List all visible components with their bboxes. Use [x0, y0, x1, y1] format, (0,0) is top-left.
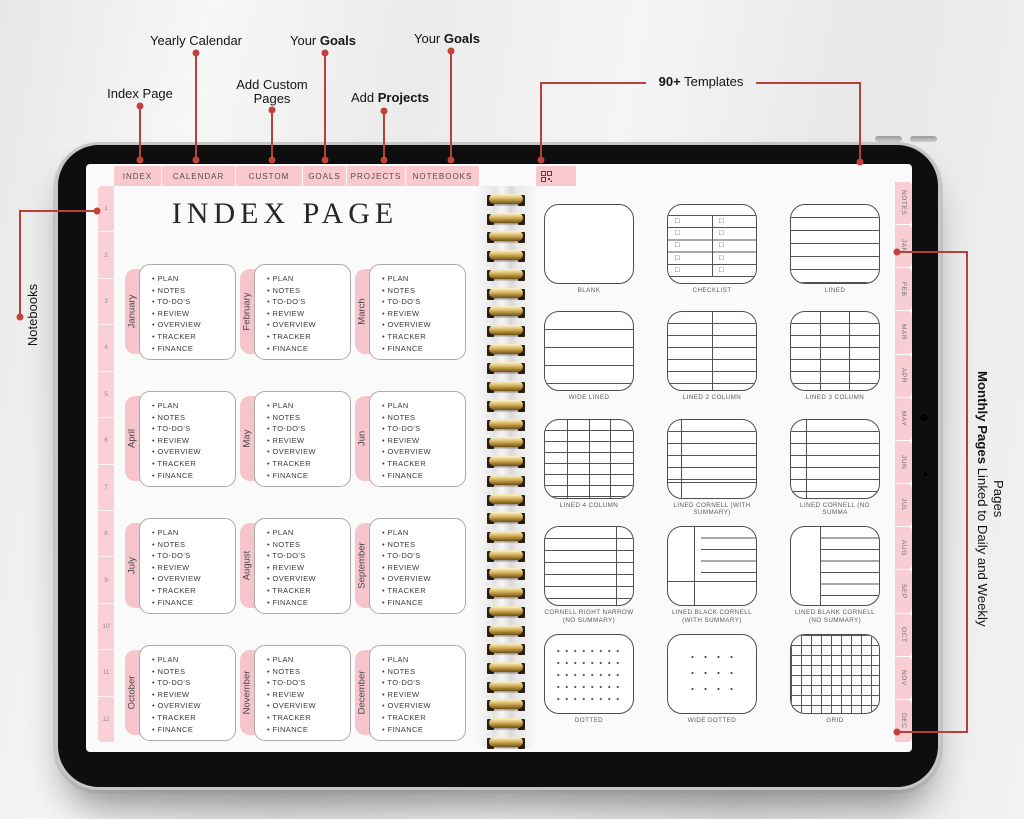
spiral-coil: [489, 231, 523, 241]
month-links: PLANNOTESTO-DO'SREVIEWOVERVIEWTRACKERFIN…: [267, 400, 347, 481]
side-tab-mar[interactable]: MAR: [895, 311, 912, 353]
annotation-dot: [448, 157, 455, 164]
month-links: PLANNOTESTO-DO'SREVIEWOVERVIEWTRACKERFIN…: [382, 273, 462, 354]
template-cell: LINED: [790, 204, 880, 311]
top-tab-bar: INDEXCALENDARCUSTOMGOALSPROJECTSNOTEBOOK…: [114, 166, 479, 186]
template-thumb-blank-cornell[interactable]: [790, 526, 880, 606]
month-link[interactable]: REVIEW: [382, 308, 462, 320]
spiral-ring: [485, 194, 527, 207]
month-link[interactable]: TRACKER: [382, 585, 462, 597]
volume-button: [910, 136, 937, 142]
month-link[interactable]: NOTES: [152, 412, 232, 424]
month-link[interactable]: TO-DO'S: [152, 296, 232, 308]
spiral-coil: [489, 625, 523, 635]
side-tab-1[interactable]: 1: [98, 186, 114, 231]
spiral-ring: [485, 381, 527, 394]
month-links: PLANNOTESTO-DO'SREVIEWOVERVIEWTRACKERFIN…: [382, 527, 462, 608]
spiral-coil: [489, 381, 523, 391]
month-link[interactable]: FINANCE: [382, 470, 462, 482]
month-link[interactable]: FINANCE: [152, 470, 232, 482]
month-block-august: AugustPLANNOTESTO-DO'SREVIEWOVERVIEWTRAC…: [240, 518, 352, 614]
month-link[interactable]: PLAN: [152, 273, 232, 285]
template-label: WIDE DOTTED: [688, 717, 736, 725]
side-tab-feb[interactable]: FEB: [895, 268, 912, 310]
month-link[interactable]: TO-DO'S: [382, 550, 462, 562]
spiral-ring: [485, 643, 527, 656]
month-link[interactable]: TRACKER: [152, 458, 232, 470]
black-cornell-pattern: [668, 527, 756, 605]
template-thumb-blank[interactable]: [544, 204, 634, 284]
side-tab-7[interactable]: 7: [98, 464, 114, 510]
spiral-ring: [485, 662, 527, 675]
month-link[interactable]: FINANCE: [382, 597, 462, 609]
month-link[interactable]: NOTES: [382, 412, 462, 424]
annotation-line: [195, 52, 197, 160]
template-label: LINED 2 COLUMN: [683, 394, 741, 402]
month-link[interactable]: NOTES: [267, 412, 347, 424]
spiral-ring: [485, 325, 527, 338]
month-link[interactable]: NOTES: [152, 285, 232, 297]
month-card: PLANNOTESTO-DO'SREVIEWOVERVIEWTRACKERFIN…: [369, 645, 466, 741]
annotation-dot: [193, 157, 200, 164]
month-link[interactable]: TRACKER: [152, 585, 232, 597]
annotation-dot: [193, 50, 200, 57]
side-tab-dec[interactable]: DEC: [895, 700, 912, 742]
month-block-november: NovemberPLANNOTESTO-DO'SREVIEWOVERVIEWTR…: [240, 645, 352, 741]
spiral-ring: [485, 587, 527, 600]
template-thumb-cornell-right[interactable]: [544, 526, 634, 606]
templates-grid: BLANKCHECKLISTLINEDWIDE LINEDLINED 2 COL…: [544, 204, 880, 741]
annotation-dot: [269, 107, 276, 114]
month-link[interactable]: TO-DO'S: [382, 677, 462, 689]
annotation-line: [859, 82, 861, 162]
annotation-dot: [94, 208, 101, 215]
spiral-ring: [485, 288, 527, 301]
side-tab-10[interactable]: 10: [98, 603, 114, 649]
template-thumb-col3[interactable]: [790, 311, 880, 391]
tab-index[interactable]: INDEX: [114, 166, 161, 186]
month-link[interactable]: NOTES: [267, 539, 347, 551]
template-cell: LINED BLACK CORNELL (WITH SUMMARY): [667, 526, 757, 633]
annotation-yearly-calendar: Yearly Calendar: [150, 34, 242, 48]
annotation-dot: [381, 108, 388, 115]
month-card: PLANNOTESTO-DO'SREVIEWOVERVIEWTRACKERFIN…: [139, 391, 236, 487]
month-link[interactable]: NOTES: [152, 666, 232, 678]
month-link[interactable]: PLAN: [382, 527, 462, 539]
annotation-line: [540, 82, 542, 160]
month-block-september: SeptemberPLANNOTESTO-DO'SREVIEWOVERVIEWT…: [355, 518, 467, 614]
month-card: PLANNOTESTO-DO'SREVIEWOVERVIEWTRACKERFIN…: [254, 645, 351, 741]
month-link[interactable]: REVIEW: [152, 435, 232, 447]
template-label: LINED BLANK CORNELL (NO SUMMARY): [790, 609, 880, 624]
template-label: BLANK: [578, 287, 601, 295]
annotation-line: [450, 50, 452, 160]
spiral-ring: [485, 231, 527, 244]
month-name: January: [127, 276, 138, 348]
annotation-monthly-pages: Monthly Pages Linked to Daily and Weekly…: [974, 368, 1006, 630]
grid-pattern: [791, 635, 879, 713]
month-link[interactable]: REVIEW: [267, 435, 347, 447]
month-block-july: JulyPLANNOTESTO-DO'SREVIEWOVERVIEWTRACKE…: [125, 518, 237, 614]
month-link[interactable]: TO-DO'S: [152, 677, 232, 689]
month-link[interactable]: FINANCE: [267, 724, 347, 736]
side-tab-4[interactable]: 4: [98, 324, 114, 370]
tab-custom[interactable]: CUSTOM: [235, 166, 302, 186]
annotation-dot: [137, 103, 144, 110]
month-link[interactable]: REVIEW: [152, 562, 232, 574]
template-thumb-grid[interactable]: [790, 634, 880, 714]
month-links: PLANNOTESTO-DO'SREVIEWOVERVIEWTRACKERFIN…: [152, 654, 232, 735]
month-link[interactable]: NOTES: [382, 666, 462, 678]
month-card: PLANNOTESTO-DO'SREVIEWOVERVIEWTRACKERFIN…: [139, 264, 236, 360]
month-link[interactable]: REVIEW: [382, 435, 462, 447]
spiral-ring: [485, 475, 527, 488]
template-cell: LINED CORNELL (WITH SUMMARY): [667, 419, 757, 526]
side-tab-notes[interactable]: NOTES: [895, 182, 912, 224]
template-cell: LINED 3 COLUMN: [790, 311, 880, 418]
annotation-dot: [322, 157, 329, 164]
month-link[interactable]: OVERVIEW: [267, 319, 347, 331]
month-links: PLANNOTESTO-DO'SREVIEWOVERVIEWTRACKERFIN…: [382, 654, 462, 735]
col4-pattern: [545, 420, 633, 498]
spiral-coil: [489, 643, 523, 653]
lined-pattern: [791, 205, 879, 283]
template-thumb-dotted[interactable]: [544, 634, 634, 714]
month-link[interactable]: TO-DO'S: [152, 423, 232, 435]
month-link[interactable]: TO-DO'S: [382, 296, 462, 308]
month-link[interactable]: OVERVIEW: [382, 573, 462, 585]
month-links: PLANNOTESTO-DO'SREVIEWOVERVIEWTRACKERFIN…: [267, 654, 347, 735]
annotation-line: [542, 82, 646, 84]
month-link[interactable]: TRACKER: [267, 712, 347, 724]
month-link[interactable]: OVERVIEW: [152, 573, 232, 585]
month-block-april: AprilPLANNOTESTO-DO'SREVIEWOVERVIEWTRACK…: [125, 391, 237, 487]
month-link[interactable]: TO-DO'S: [152, 550, 232, 562]
spiral-ring: [485, 362, 527, 375]
template-cell: LINED 2 COLUMN: [667, 311, 757, 418]
spiral-coil: [489, 250, 523, 260]
side-tab-apr[interactable]: APR: [895, 355, 912, 397]
camera-lens-icon: [919, 413, 929, 423]
month-link[interactable]: TRACKER: [382, 458, 462, 470]
month-link[interactable]: OVERVIEW: [152, 446, 232, 458]
month-name: October: [127, 657, 138, 729]
tablet-frame: INDEXCALENDARCUSTOMGOALSPROJECTSNOTEBOOK…: [55, 142, 941, 790]
month-block-jun: JunPLANNOTESTO-DO'SREVIEWOVERVIEWTRACKER…: [355, 391, 467, 487]
month-link[interactable]: NOTES: [267, 666, 347, 678]
month-link[interactable]: FINANCE: [267, 597, 347, 609]
month-link[interactable]: REVIEW: [267, 308, 347, 320]
spiral-coil: [489, 662, 523, 672]
template-label: LINED 3 COLUMN: [806, 394, 864, 402]
spiral-ring: [485, 681, 527, 694]
template-cell: LINED BLANK CORNELL (NO SUMMARY): [790, 526, 880, 633]
template-cell: LINED 4 COLUMN: [544, 419, 634, 526]
spiral-ring: [485, 269, 527, 282]
annotation-line: [383, 110, 385, 160]
spiral-coil: [489, 288, 523, 298]
template-thumb-col4[interactable]: [544, 419, 634, 499]
annotation-line: [271, 109, 273, 160]
side-tab-11[interactable]: 11: [98, 649, 114, 695]
month-link[interactable]: REVIEW: [267, 689, 347, 701]
template-label: DOTTED: [575, 717, 603, 725]
month-link[interactable]: NOTES: [152, 539, 232, 551]
side-tab-nov[interactable]: NOV: [895, 657, 912, 699]
month-card: PLANNOTESTO-DO'SREVIEWOVERVIEWTRACKERFIN…: [369, 264, 466, 360]
month-link[interactable]: OVERVIEW: [152, 319, 232, 331]
spiral-coil: [489, 437, 523, 447]
month-card: PLANNOTESTO-DO'SREVIEWOVERVIEWTRACKERFIN…: [254, 518, 351, 614]
side-tab-8[interactable]: 8: [98, 510, 114, 556]
template-label: WIDE LINED: [569, 394, 610, 402]
spiral-coil: [489, 550, 523, 560]
template-grid-icon: [541, 171, 552, 182]
month-name: September: [357, 530, 368, 602]
blank-cornell-pattern: [791, 527, 879, 605]
spiral-coil: [489, 699, 523, 709]
side-tab-jul[interactable]: JUL: [895, 484, 912, 526]
months-grid: JanuaryPLANNOTESTO-DO'SREVIEWOVERVIEWTRA…: [125, 264, 471, 741]
month-link[interactable]: PLAN: [152, 400, 232, 412]
side-tab-aug[interactable]: AUG: [895, 527, 912, 569]
month-link[interactable]: OVERVIEW: [382, 700, 462, 712]
annotation-dot: [538, 157, 545, 164]
template-thumb-wide-lined[interactable]: [544, 311, 634, 391]
col3-pattern: [791, 312, 879, 390]
spiral-ring: [485, 550, 527, 563]
month-name: May: [242, 403, 253, 475]
spiral-ring: [485, 737, 527, 750]
month-link[interactable]: REVIEW: [382, 689, 462, 701]
side-tab-sep[interactable]: SEP: [895, 570, 912, 612]
month-link[interactable]: OVERVIEW: [152, 700, 232, 712]
month-link[interactable]: TO-DO'S: [267, 423, 347, 435]
spiral-coil: [489, 194, 523, 204]
checklist-pattern: [668, 205, 756, 283]
tab-notebooks[interactable]: NOTEBOOKS: [405, 166, 479, 186]
month-block-may: MayPLANNOTESTO-DO'SREVIEWOVERVIEWTRACKER…: [240, 391, 352, 487]
month-link[interactable]: OVERVIEW: [267, 446, 347, 458]
month-link[interactable]: PLAN: [152, 527, 232, 539]
side-tab-jun[interactable]: JUN: [895, 441, 912, 483]
cornell-nosum-pattern: [791, 420, 879, 498]
side-tab-oct[interactable]: OCT: [895, 614, 912, 656]
spiral-coil: [489, 400, 523, 410]
spiral-coil: [489, 531, 523, 541]
template-label: LINED CORNELL (WITH SUMMARY): [667, 502, 757, 517]
template-label: LINED: [825, 287, 846, 295]
dotted-pattern: [545, 635, 633, 713]
spiral-coil: [489, 362, 523, 372]
spiral-coil: [489, 456, 523, 466]
month-link[interactable]: TO-DO'S: [267, 677, 347, 689]
side-tab-6[interactable]: 6: [98, 417, 114, 463]
side-tab-may[interactable]: MAY: [895, 398, 912, 440]
side-tab-5[interactable]: 5: [98, 371, 114, 417]
template-cell: GRID: [790, 634, 880, 741]
month-link[interactable]: FINANCE: [382, 343, 462, 355]
spiral-ring: [485, 568, 527, 581]
annotation-dot: [381, 157, 388, 164]
month-name: July: [127, 530, 138, 602]
page-title: INDEX PAGE: [145, 197, 425, 231]
right-month-tabs: NOTESJANFEBMARAPRMAYJUNJULAUGSEPOCTNOVDE…: [895, 182, 912, 742]
month-link[interactable]: TRACKER: [382, 331, 462, 343]
left-number-tabs: 123456789101112: [98, 186, 114, 742]
month-link[interactable]: OVERVIEW: [382, 319, 462, 331]
spiral-coil: [489, 419, 523, 429]
month-link[interactable]: TRACKER: [152, 331, 232, 343]
template-thumb-cornell-nosum[interactable]: [790, 419, 880, 499]
template-cell: DOTTED: [544, 634, 634, 741]
month-link[interactable]: TRACKER: [267, 585, 347, 597]
month-link[interactable]: NOTES: [382, 285, 462, 297]
month-links: PLANNOTESTO-DO'SREVIEWOVERVIEWTRACKERFIN…: [267, 273, 347, 354]
month-links: PLANNOTESTO-DO'SREVIEWOVERVIEWTRACKERFIN…: [267, 527, 347, 608]
month-link[interactable]: PLAN: [382, 654, 462, 666]
month-block-january: JanuaryPLANNOTESTO-DO'SREVIEWOVERVIEWTRA…: [125, 264, 237, 360]
month-link[interactable]: PLAN: [267, 273, 347, 285]
month-link[interactable]: TO-DO'S: [267, 296, 347, 308]
side-tab-2[interactable]: 2: [98, 231, 114, 277]
template-cell: WIDE LINED: [544, 311, 634, 418]
annotation-dot: [269, 157, 276, 164]
month-link[interactable]: REVIEW: [152, 689, 232, 701]
spiral-coil: [489, 587, 523, 597]
spiral-ring: [485, 531, 527, 544]
template-thumb-cornell-sum[interactable]: [667, 419, 757, 499]
month-link[interactable]: PLAN: [382, 273, 462, 285]
month-link[interactable]: NOTES: [267, 285, 347, 297]
month-name: November: [242, 657, 253, 729]
cornell-right-pattern: [545, 527, 633, 605]
side-tab-3[interactable]: 3: [98, 278, 114, 324]
spiral-coil: [489, 475, 523, 485]
month-link[interactable]: REVIEW: [382, 562, 462, 574]
side-tab-jan[interactable]: JAN: [895, 225, 912, 267]
month-links: PLANNOTESTO-DO'SREVIEWOVERVIEWTRACKERFIN…: [382, 400, 462, 481]
month-link[interactable]: TO-DO'S: [382, 423, 462, 435]
month-link[interactable]: OVERVIEW: [382, 446, 462, 458]
spiral-ring: [485, 625, 527, 638]
annotation-dot: [17, 314, 24, 321]
spiral-ring: [485, 419, 527, 432]
wide-lined-pattern: [545, 312, 633, 390]
annotation-line: [19, 211, 21, 317]
month-name: February: [242, 276, 253, 348]
month-link[interactable]: PLAN: [267, 654, 347, 666]
month-card: PLANNOTESTO-DO'SREVIEWOVERVIEWTRACKERFIN…: [369, 391, 466, 487]
spiral-ring: [485, 437, 527, 450]
month-link[interactable]: REVIEW: [152, 308, 232, 320]
tab-goals[interactable]: GOALS: [302, 166, 346, 186]
month-name: March: [357, 276, 368, 348]
month-link[interactable]: FINANCE: [267, 470, 347, 482]
month-link[interactable]: TRACKER: [382, 712, 462, 724]
side-tab-12[interactable]: 12: [98, 696, 114, 742]
spiral-coil: [489, 737, 523, 747]
spiral-coil: [489, 325, 523, 335]
month-block-december: DecemberPLANNOTESTO-DO'SREVIEWOVERVIEWTR…: [355, 645, 467, 741]
spiral-coil: [489, 213, 523, 223]
tab-templates-icon[interactable]: [536, 166, 576, 186]
month-link[interactable]: PLAN: [267, 400, 347, 412]
month-links: PLANNOTESTO-DO'SREVIEWOVERVIEWTRACKERFIN…: [152, 527, 232, 608]
annotation-dot: [322, 50, 329, 57]
month-name: Jun: [357, 403, 368, 475]
annotation-your-goals: Your Goals: [414, 32, 480, 46]
month-link[interactable]: FINANCE: [152, 343, 232, 355]
spiral-ring: [485, 344, 527, 357]
cornell-sum-pattern: [668, 420, 756, 498]
spiral-ring: [485, 718, 527, 731]
template-thumb-wide-dotted[interactable]: [667, 634, 757, 714]
month-link[interactable]: TRACKER: [152, 712, 232, 724]
annotation-add-custom-pages: Add Custom Pages: [226, 78, 318, 106]
month-name: April: [127, 403, 138, 475]
annotation-line: [756, 82, 861, 84]
annotation-add-projects: Add Projects: [351, 91, 429, 105]
month-card: PLANNOTESTO-DO'SREVIEWOVERVIEWTRACKERFIN…: [369, 518, 466, 614]
annotation-line: [324, 52, 326, 160]
month-link[interactable]: PLAN: [152, 654, 232, 666]
month-name: December: [357, 657, 368, 729]
template-thumb-lined[interactable]: [790, 204, 880, 284]
side-tab-9[interactable]: 9: [98, 556, 114, 602]
template-thumb-col2[interactable]: [667, 311, 757, 391]
month-card: PLANNOTESTO-DO'SREVIEWOVERVIEWTRACKERFIN…: [139, 645, 236, 741]
spiral-coil: [489, 512, 523, 522]
spiral-ring: [485, 606, 527, 619]
month-link[interactable]: FINANCE: [267, 343, 347, 355]
annotation-dot: [894, 729, 901, 736]
template-label: LINED CORNELL (NO SUMMA: [790, 502, 880, 517]
month-link[interactable]: OVERVIEW: [267, 700, 347, 712]
month-link[interactable]: PLAN: [382, 400, 462, 412]
spiral-coil: [489, 681, 523, 691]
month-link[interactable]: TRACKER: [267, 331, 347, 343]
tab-projects[interactable]: PROJECTS: [346, 166, 405, 186]
spiral-coil: [489, 718, 523, 728]
month-link[interactable]: REVIEW: [267, 562, 347, 574]
planner-screen: INDEXCALENDARCUSTOMGOALSPROJECTSNOTEBOOK…: [86, 164, 912, 752]
spiral-coil: [489, 606, 523, 616]
spiral-ring: [485, 213, 527, 226]
month-name: August: [242, 530, 253, 602]
month-link[interactable]: PLAN: [267, 527, 347, 539]
annotation-index-page: Index Page: [107, 87, 173, 101]
month-link[interactable]: OVERVIEW: [267, 573, 347, 585]
spiral-binding: [485, 194, 527, 750]
annotation-notebooks: Notebooks: [26, 275, 40, 355]
template-thumb-checklist[interactable]: [667, 204, 757, 284]
month-block-october: OctoberPLANNOTESTO-DO'SREVIEWOVERVIEWTRA…: [125, 645, 237, 741]
month-link[interactable]: TRACKER: [267, 458, 347, 470]
spiral-coil: [489, 494, 523, 504]
annotation-your-goals: Your Goals: [290, 34, 356, 48]
month-link[interactable]: FINANCE: [382, 724, 462, 736]
month-link[interactable]: FINANCE: [152, 597, 232, 609]
annotation-dot: [894, 249, 901, 256]
month-link[interactable]: TO-DO'S: [267, 550, 347, 562]
month-link[interactable]: FINANCE: [152, 724, 232, 736]
template-thumb-black-cornell[interactable]: [667, 526, 757, 606]
month-card: PLANNOTESTO-DO'SREVIEWOVERVIEWTRACKERFIN…: [254, 264, 351, 360]
annotation-dot: [857, 159, 864, 166]
month-link[interactable]: NOTES: [382, 539, 462, 551]
tab-calendar[interactable]: CALENDAR: [161, 166, 235, 186]
